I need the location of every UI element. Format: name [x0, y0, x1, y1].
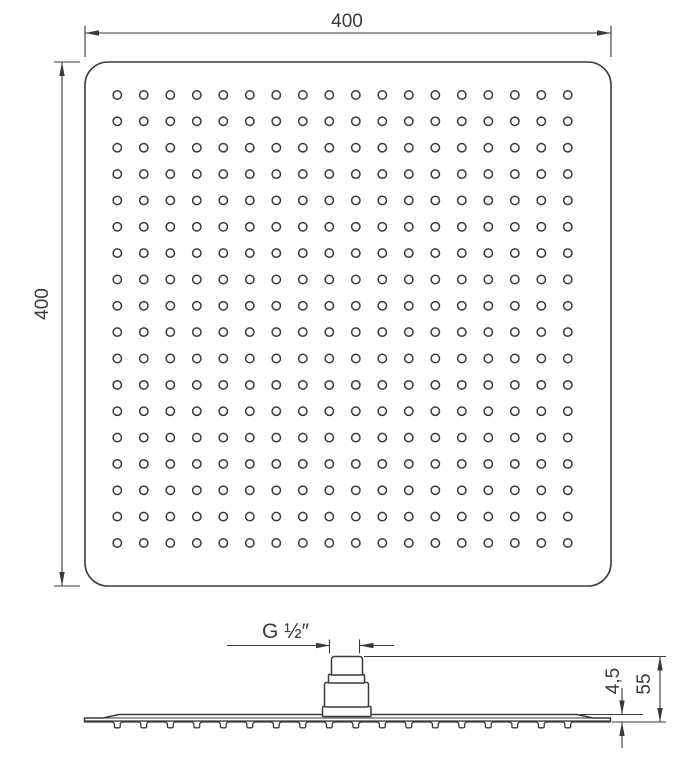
nozzle-hole: [431, 354, 439, 362]
nozzle-hole: [458, 223, 466, 231]
nozzle-hole: [431, 170, 439, 178]
nozzle-hole: [352, 249, 360, 257]
nozzle-hole: [405, 223, 413, 231]
nozzle-hole: [193, 91, 201, 99]
nozzle-hole: [193, 170, 201, 178]
nozzle-hole: [511, 512, 519, 520]
nozzle-hole: [325, 407, 333, 415]
thread-size-label: G ½″: [262, 620, 310, 643]
nozzle-hole: [511, 223, 519, 231]
nozzle-hole: [166, 196, 174, 204]
nozzle-hole: [352, 91, 360, 99]
nozzle-hole: [193, 460, 201, 468]
nozzle-tooth: [350, 722, 362, 728]
nozzle-hole: [405, 275, 413, 283]
nozzle-hole: [378, 460, 386, 468]
nozzle-teeth-row: [112, 722, 574, 728]
nozzle-hole: [352, 117, 360, 125]
nozzle-hole: [484, 302, 492, 310]
nozzle-hole: [511, 302, 519, 310]
nozzle-hole: [113, 117, 121, 125]
nozzle-hole: [219, 460, 227, 468]
nozzle-hole: [299, 512, 307, 520]
nozzle-hole: [299, 91, 307, 99]
nozzle-hole: [140, 486, 148, 494]
nozzle-tooth: [244, 722, 256, 728]
nozzle-hole: [325, 328, 333, 336]
nozzle-hole: [166, 407, 174, 415]
nozzle-hole: [405, 354, 413, 362]
nozzle-hole: [219, 196, 227, 204]
nozzle-hole: [140, 223, 148, 231]
nozzle-hole: [299, 170, 307, 178]
nozzle-hole: [219, 328, 227, 336]
nozzle-hole: [219, 249, 227, 257]
nozzle-hole: [246, 512, 254, 520]
nozzle-hole: [246, 486, 254, 494]
nozzle-hole: [484, 223, 492, 231]
arrow-down-icon: [657, 708, 662, 722]
nozzle-hole: [219, 433, 227, 441]
nozzle-hole: [113, 433, 121, 441]
nozzle-hole: [299, 407, 307, 415]
nozzle-hole: [458, 249, 466, 257]
arrow-right-icon: [316, 643, 330, 648]
nozzle-hole: [564, 275, 572, 283]
nozzle-hole: [511, 91, 519, 99]
nozzle-hole: [484, 407, 492, 415]
nozzle-tooth: [112, 722, 124, 728]
nozzle-hole: [484, 170, 492, 178]
nozzle-hole: [378, 249, 386, 257]
connector-body: [325, 683, 369, 708]
nozzle-hole: [564, 223, 572, 231]
nozzle-hole: [113, 381, 121, 389]
nozzle-hole: [166, 144, 174, 152]
nozzle-hole: [193, 196, 201, 204]
nozzle-hole: [113, 486, 121, 494]
connector-base: [323, 707, 372, 717]
nozzle-tooth: [324, 722, 336, 728]
showerhead-face-outline: [85, 62, 611, 586]
nozzle-hole: [431, 196, 439, 204]
nozzle-hole: [193, 328, 201, 336]
nozzle-hole: [113, 170, 121, 178]
nozzle-hole: [272, 117, 280, 125]
arrow-left-icon: [360, 643, 374, 648]
nozzle-hole: [378, 407, 386, 415]
plate-thickness-label: 4,5: [603, 668, 624, 694]
nozzle-hole: [405, 460, 413, 468]
nozzle-hole: [378, 170, 386, 178]
nozzle-hole: [564, 381, 572, 389]
nozzle-hole: [246, 539, 254, 547]
nozzle-hole: [140, 144, 148, 152]
nozzle-hole: [564, 249, 572, 257]
nozzle-hole: [484, 144, 492, 152]
nozzle-hole: [537, 91, 545, 99]
nozzle-hole: [431, 117, 439, 125]
nozzle-hole: [484, 354, 492, 362]
nozzle-hole: [299, 223, 307, 231]
nozzle-hole: [272, 196, 280, 204]
nozzle-hole: [166, 117, 174, 125]
nozzle-hole: [272, 407, 280, 415]
left-height-dimension-label: 400: [32, 288, 53, 320]
nozzle-hole: [325, 381, 333, 389]
nozzle-hole: [299, 144, 307, 152]
nozzle-hole: [537, 460, 545, 468]
nozzle-hole: [352, 407, 360, 415]
nozzle-tooth: [509, 722, 521, 728]
nozzle-tooth: [138, 722, 150, 728]
nozzle-tooth: [218, 722, 230, 728]
nozzle-hole: [537, 170, 545, 178]
nozzle-hole: [352, 486, 360, 494]
shower-head-technical-drawing: 400 400 G ½″ 55: [0, 0, 691, 763]
nozzle-hole: [272, 170, 280, 178]
nozzle-hole: [564, 486, 572, 494]
nozzle-hole: [272, 460, 280, 468]
nozzle-hole: [219, 91, 227, 99]
nozzle-hole: [246, 170, 254, 178]
nozzle-hole: [246, 460, 254, 468]
nozzle-hole: [458, 407, 466, 415]
nozzle-hole: [352, 302, 360, 310]
nozzle-hole: [431, 328, 439, 336]
nozzle-hole: [325, 144, 333, 152]
nozzle-hole: [352, 433, 360, 441]
nozzle-hole: [193, 249, 201, 257]
nozzle-hole: [458, 328, 466, 336]
nozzle-hole: [564, 354, 572, 362]
nozzle-hole: [246, 91, 254, 99]
nozzle-hole: [325, 223, 333, 231]
nozzle-hole: [458, 460, 466, 468]
nozzle-hole: [431, 223, 439, 231]
nozzle-hole: [246, 381, 254, 389]
nozzle-hole: [140, 196, 148, 204]
nozzle-hole: [166, 328, 174, 336]
nozzle-hole: [564, 460, 572, 468]
nozzle-hole: [246, 354, 254, 362]
nozzle-hole: [246, 223, 254, 231]
nozzle-hole: [113, 354, 121, 362]
nozzle-hole: [113, 302, 121, 310]
nozzle-tooth: [377, 722, 389, 728]
nozzle-hole: [193, 512, 201, 520]
nozzle-tooth: [456, 722, 468, 728]
nozzle-hole: [299, 328, 307, 336]
nozzle-hole: [140, 539, 148, 547]
arrow-down-icon: [619, 701, 624, 715]
nozzle-hole: [458, 117, 466, 125]
nozzle-hole: [166, 91, 174, 99]
overall-height-label: 55: [634, 673, 655, 694]
nozzle-hole: [511, 433, 519, 441]
nozzle-hole: [431, 460, 439, 468]
nozzle-hole: [113, 275, 121, 283]
nozzle-hole: [299, 249, 307, 257]
nozzle-hole: [405, 117, 413, 125]
nozzle-hole: [272, 354, 280, 362]
nozzle-hole: [299, 275, 307, 283]
nozzle-hole: [484, 381, 492, 389]
nozzle-hole: [431, 275, 439, 283]
top-width-dimension: 400: [85, 11, 611, 57]
nozzle-hole: [140, 328, 148, 336]
nozzle-hole: [299, 539, 307, 547]
nozzle-hole: [193, 381, 201, 389]
arrow-up-icon: [59, 62, 64, 76]
arrow-up-icon: [657, 657, 662, 671]
arrow-down-icon: [59, 572, 64, 586]
nozzle-tooth: [271, 722, 283, 728]
nozzle-hole: [325, 539, 333, 547]
nozzle-hole: [113, 144, 121, 152]
nozzle-hole: [140, 512, 148, 520]
nozzle-hole: [193, 407, 201, 415]
nozzle-hole: [511, 381, 519, 389]
top-view: [85, 62, 611, 586]
nozzle-hole: [113, 328, 121, 336]
nozzle-hole: [166, 433, 174, 441]
nozzle-hole: [352, 144, 360, 152]
nozzle-hole: [564, 91, 572, 99]
nozzle-hole: [299, 117, 307, 125]
nozzle-tooth: [430, 722, 442, 728]
nozzle-hole: [219, 170, 227, 178]
nozzle-hole: [511, 328, 519, 336]
nozzle-hole: [140, 249, 148, 257]
nozzle-hole: [458, 433, 466, 441]
nozzle-hole: [246, 249, 254, 257]
nozzle-hole: [405, 302, 413, 310]
nozzle-hole: [405, 486, 413, 494]
nozzle-hole: [564, 539, 572, 547]
nozzle-hole: [484, 196, 492, 204]
nozzle-hole: [537, 328, 545, 336]
nozzle-hole: [325, 196, 333, 204]
nozzle-hole: [537, 539, 545, 547]
nozzle-hole: [458, 275, 466, 283]
nozzle-hole: [431, 433, 439, 441]
nozzle-hole: [166, 486, 174, 494]
nozzle-hole: [564, 196, 572, 204]
nozzle-hole: [511, 196, 519, 204]
nozzle-hole: [166, 302, 174, 310]
nozzle-hole: [140, 460, 148, 468]
nozzle-hole: [166, 512, 174, 520]
nozzle-hole: [352, 460, 360, 468]
nozzle-hole: [564, 170, 572, 178]
nozzle-hole: [511, 275, 519, 283]
nozzle-hole: [378, 433, 386, 441]
nozzle-hole: [511, 460, 519, 468]
nozzle-hole: [325, 249, 333, 257]
nozzle-hole: [219, 302, 227, 310]
nozzle-hole: [272, 539, 280, 547]
nozzle-hole: [431, 91, 439, 99]
nozzle-hole: [140, 407, 148, 415]
nozzle-hole: [272, 486, 280, 494]
nozzle-tooth: [165, 722, 177, 728]
nozzle-hole: [193, 433, 201, 441]
thread-dimension: G ½″: [227, 620, 394, 654]
nozzle-hole: [458, 354, 466, 362]
nozzle-hole: [537, 512, 545, 520]
nozzle-hole: [299, 196, 307, 204]
nozzle-hole: [166, 354, 174, 362]
nozzle-hole: [246, 117, 254, 125]
nozzle-hole: [352, 539, 360, 547]
nozzle-hole: [458, 196, 466, 204]
nozzle-hole: [431, 512, 439, 520]
nozzle-hole: [511, 407, 519, 415]
arrow-right-icon: [597, 30, 611, 35]
nozzle-hole: [405, 196, 413, 204]
nozzle-hole: [140, 354, 148, 362]
nozzle-hole: [458, 91, 466, 99]
nozzle-hole: [166, 223, 174, 231]
nozzle-hole: [405, 91, 413, 99]
nozzle-hole: [352, 328, 360, 336]
nozzle-hole: [272, 328, 280, 336]
nozzle-tooth: [297, 722, 309, 728]
nozzle-hole: [325, 486, 333, 494]
nozzle-hole: [246, 433, 254, 441]
nozzle-hole: [431, 407, 439, 415]
nozzle-hole: [113, 512, 121, 520]
nozzle-hole: [378, 381, 386, 389]
nozzle-hole: [378, 275, 386, 283]
nozzle-hole: [272, 381, 280, 389]
nozzle-hole: [378, 117, 386, 125]
nozzle-hole: [484, 539, 492, 547]
nozzle-hole: [431, 249, 439, 257]
nozzle-hole: [113, 460, 121, 468]
nozzle-hole: [325, 512, 333, 520]
nozzle-hole: [352, 223, 360, 231]
nozzle-hole: [537, 117, 545, 125]
nozzle-hole: [484, 433, 492, 441]
nozzle-hole: [352, 381, 360, 389]
nozzle-hole: [272, 91, 280, 99]
nozzle-hole: [564, 117, 572, 125]
nozzle-hole: [193, 539, 201, 547]
nozzle-hole: [537, 302, 545, 310]
nozzle-hole: [484, 486, 492, 494]
nozzle-hole: [378, 196, 386, 204]
nozzle-hole: [458, 170, 466, 178]
nozzle-hole: [219, 223, 227, 231]
nozzle-hole: [299, 381, 307, 389]
nozzle-hole: [140, 170, 148, 178]
nozzle-hole: [405, 144, 413, 152]
nozzle-hole: [325, 117, 333, 125]
nozzle-hole: [193, 117, 201, 125]
nozzle-hole: [219, 275, 227, 283]
nozzle-hole: [325, 275, 333, 283]
nozzle-hole: [458, 539, 466, 547]
nozzle-hole: [484, 249, 492, 257]
nozzle-hole: [166, 275, 174, 283]
nozzle-hole: [431, 381, 439, 389]
nozzle-tooth: [483, 722, 495, 728]
nozzle-hole: [458, 381, 466, 389]
nozzle-hole: [219, 486, 227, 494]
nozzle-hole: [272, 302, 280, 310]
nozzle-hole: [537, 144, 545, 152]
nozzle-hole: [193, 223, 201, 231]
nozzle-hole: [272, 144, 280, 152]
nozzle-hole: [113, 407, 121, 415]
nozzle-hole: [537, 381, 545, 389]
nozzle-hole: [537, 223, 545, 231]
nozzle-hole: [378, 539, 386, 547]
nozzle-hole: [113, 223, 121, 231]
nozzle-hole: [299, 354, 307, 362]
nozzle-hole: [537, 486, 545, 494]
nozzle-hole: [246, 275, 254, 283]
nozzle-hole: [193, 486, 201, 494]
nozzle-hole: [564, 407, 572, 415]
nozzle-hole: [405, 381, 413, 389]
nozzle-hole: [511, 144, 519, 152]
nozzle-hole: [219, 117, 227, 125]
nozzle-hole: [564, 328, 572, 336]
nozzle-hole: [193, 275, 201, 283]
nozzle-hole: [511, 117, 519, 125]
nozzle-hole: [431, 144, 439, 152]
nozzle-hole: [564, 433, 572, 441]
nozzle-tooth: [536, 722, 548, 728]
nozzle-hole: [564, 512, 572, 520]
nozzle-hole: [352, 512, 360, 520]
nozzle-hole: [246, 328, 254, 336]
nozzle-hole: [405, 433, 413, 441]
connector-neck: [329, 675, 365, 684]
nozzle-hole: [484, 275, 492, 283]
nozzle-hole: [325, 354, 333, 362]
nozzle-hole: [246, 196, 254, 204]
nozzle-hole: [246, 302, 254, 310]
nozzle-hole: [405, 170, 413, 178]
nozzle-hole: [484, 328, 492, 336]
nozzle-hole: [405, 407, 413, 415]
nozzle-hole: [537, 433, 545, 441]
nozzle-hole: [272, 275, 280, 283]
nozzle-hole: [537, 196, 545, 204]
nozzle-hole: [537, 275, 545, 283]
nozzle-hole: [166, 381, 174, 389]
nozzle-tooth: [562, 722, 574, 728]
nozzle-hole: [325, 433, 333, 441]
nozzle-hole: [352, 354, 360, 362]
nozzle-hole: [140, 275, 148, 283]
nozzle-tooth: [403, 722, 415, 728]
nozzle-hole: [378, 91, 386, 99]
nozzle-hole: [166, 170, 174, 178]
nozzle-hole: [219, 381, 227, 389]
nozzle-hole: [193, 354, 201, 362]
nozzle-hole: [299, 460, 307, 468]
nozzle-hole: [458, 486, 466, 494]
nozzle-hole: [405, 512, 413, 520]
nozzle-hole: [484, 91, 492, 99]
nozzle-hole: [166, 539, 174, 547]
nozzle-hole: [431, 539, 439, 547]
